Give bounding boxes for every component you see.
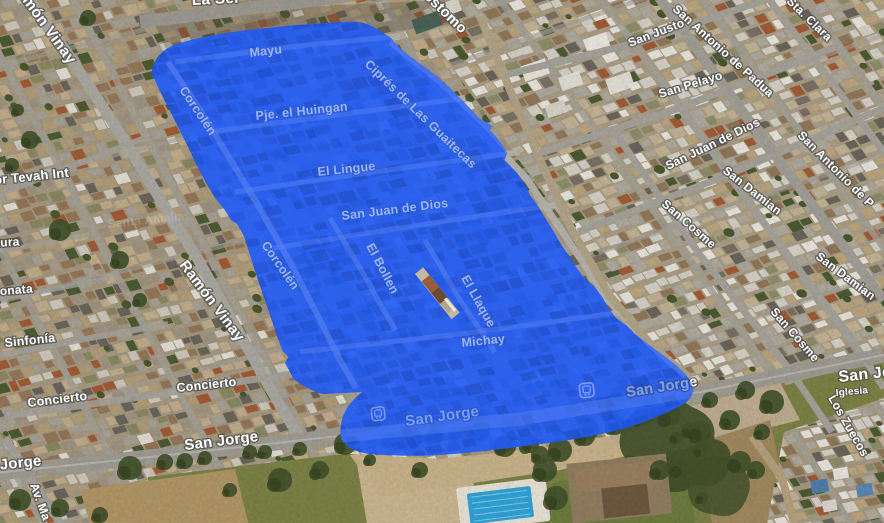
svg-text:entura: entura <box>0 234 20 251</box>
